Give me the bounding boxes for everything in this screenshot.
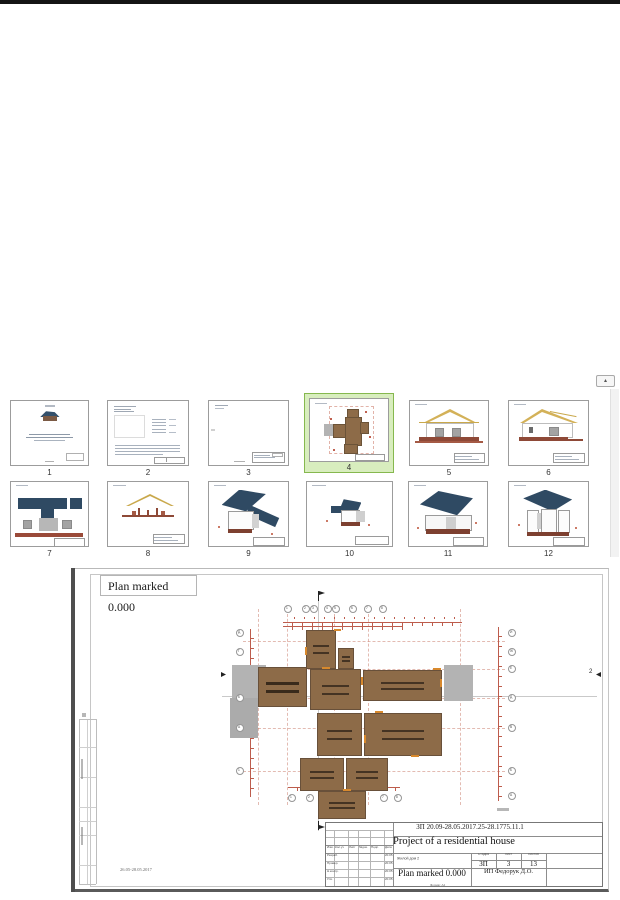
terrace-left-lower <box>230 698 258 738</box>
room-garage <box>258 667 307 707</box>
axis-bubble: 2 <box>302 605 310 613</box>
sheet-thumbnail-6[interactable]: 6 <box>508 400 589 466</box>
axis-bubble: 8 <box>379 605 387 613</box>
room <box>364 713 442 756</box>
thumbnail-number: 2 <box>108 468 188 477</box>
thumbnail-number: 6 <box>509 468 588 477</box>
terrace-right <box>444 665 473 701</box>
sheet-thumbnail-1[interactable]: 1 <box>10 400 89 466</box>
title-block: ЗП 20.09-28.05.2017.25-28.1775.11.1 Proj… <box>325 822 603 887</box>
thumbnail-number: 8 <box>108 549 188 558</box>
axis-bubble: 1 <box>288 794 296 802</box>
axis-bubble: 7 <box>380 794 388 802</box>
author-name: ИП Федорук Д.О. <box>471 868 546 886</box>
thumbnail-number: 12 <box>509 549 588 558</box>
room <box>310 669 361 710</box>
room <box>300 758 344 791</box>
thumbnail-number: 10 <box>307 549 392 558</box>
axis-bubble: Ж <box>508 648 516 656</box>
axis-bubble: Б <box>508 767 516 775</box>
thumbnail-number: 11 <box>409 549 487 558</box>
thumbnail-number: 3 <box>209 468 288 477</box>
stage-value: ЗП <box>471 860 496 868</box>
axis-bubble: 1 <box>236 767 244 775</box>
sheet-thumbnail-8[interactable]: 8 <box>107 481 189 547</box>
sheet-value: 3 <box>496 860 521 868</box>
thumbnail-scrollbar-track[interactable] <box>610 389 619 557</box>
axis-bubble: 3 <box>310 605 318 613</box>
sheets-value: 13 <box>521 860 546 868</box>
sheet-thumbnail-10[interactable]: 10 <box>306 481 393 547</box>
scroll-up-button[interactable]: ▴ <box>596 375 615 387</box>
document-code: ЗП 20.09-28.05.2017.25-28.1775.11.1 <box>393 823 602 836</box>
section-marker-left <box>221 672 226 677</box>
publisher-window: 1 2 <box>0 0 620 900</box>
sheet-date-note: 26.05-28.05.2017 <box>120 868 152 873</box>
axis-bubble: 8 <box>394 794 402 802</box>
section-marker-right: 2 <box>589 669 592 675</box>
axis-bubble: А <box>508 792 516 800</box>
room <box>317 713 362 756</box>
thumbnail-number: 9 <box>209 549 288 558</box>
axis-bubble: Б <box>236 694 244 702</box>
sheet-thumbnail-4[interactable] <box>309 398 389 462</box>
axis-bubble: А <box>236 724 244 732</box>
room <box>338 648 354 669</box>
sheet-thumbnail-5[interactable]: 5 <box>409 400 489 466</box>
sheets-header: Листов <box>527 853 541 857</box>
thumbnail-number: 4 <box>305 463 393 472</box>
room <box>346 758 388 791</box>
project-title: Project of a residential house <box>393 836 602 853</box>
axis-bubble: 5 <box>332 605 340 613</box>
sheet-thumbnail-11[interactable]: 11 <box>408 481 488 547</box>
axis-bubble: 4 <box>324 605 332 613</box>
room <box>363 670 442 701</box>
axis-bubble: 2 <box>306 794 314 802</box>
axis-bubble: 1 <box>284 605 292 613</box>
sheet-thumbnail-12[interactable]: 12 <box>508 481 589 547</box>
axis-bubble: 7 <box>364 605 372 613</box>
thumbnail-number: 5 <box>410 468 488 477</box>
axis-bubble: В <box>508 724 516 732</box>
sheet-header: Лист <box>502 853 516 857</box>
stage-header: Стадия <box>477 853 491 857</box>
axis-bubble: 6 <box>349 605 357 613</box>
room <box>306 630 336 669</box>
thumbnail-number: 7 <box>11 549 88 558</box>
sheet-thumbnail-3[interactable]: 3 <box>208 400 289 466</box>
sheet-thumbnail-2[interactable]: 2 <box>107 400 189 466</box>
sheet-thumbnail-9[interactable]: 9 <box>208 481 289 547</box>
axis-bubble: Д <box>236 629 244 637</box>
axis-bubble: И <box>508 629 516 637</box>
sheet-thumbnail-4-selected[interactable]: 4 <box>304 393 394 473</box>
axis-bubble: Д <box>508 694 516 702</box>
thumbnail-number: 1 <box>11 468 88 477</box>
format-note: Формат А4 <box>430 884 445 887</box>
axis-bubble: Е <box>508 665 516 673</box>
sheet-thumbnail-7[interactable]: 7 <box>10 481 89 547</box>
axis-bubble: Г <box>236 648 244 656</box>
room <box>318 791 366 819</box>
preview-panel: Plan marked 0.000 2 <box>75 568 609 892</box>
top-border-bar <box>0 0 620 4</box>
object-name: Жилой дом 2 <box>397 857 419 861</box>
